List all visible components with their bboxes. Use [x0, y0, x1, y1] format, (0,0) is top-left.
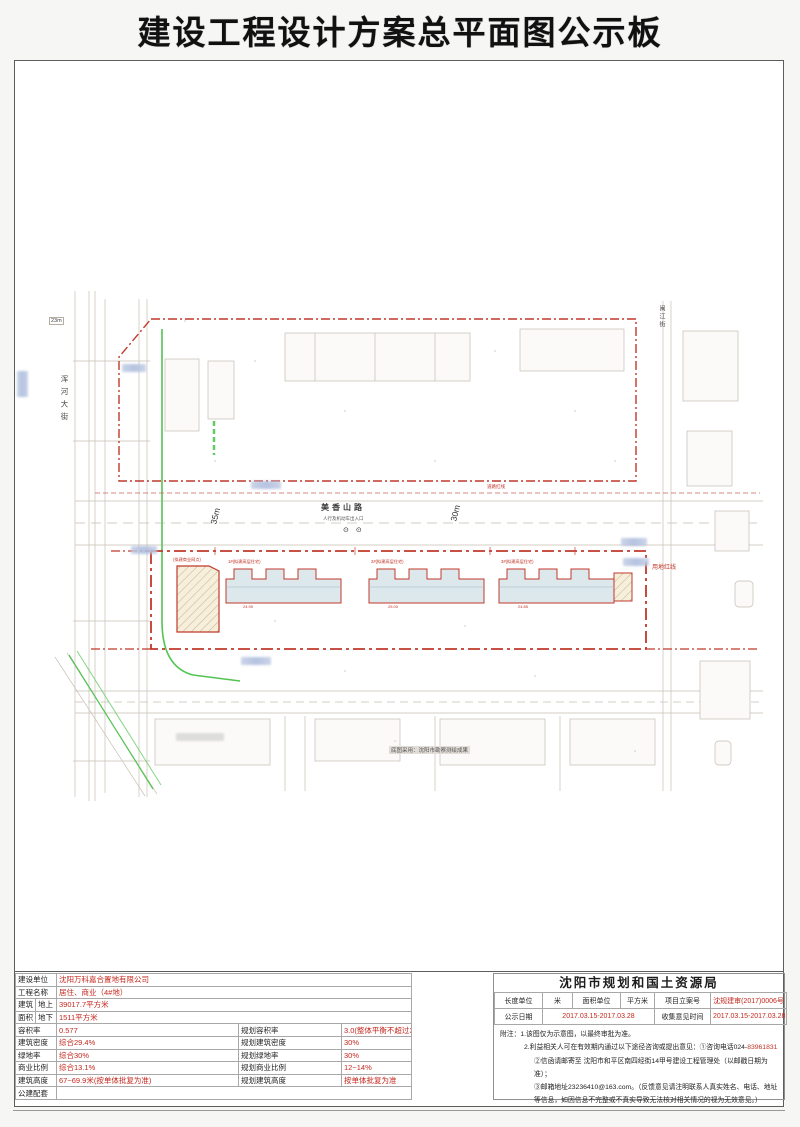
blurred-label: [122, 364, 146, 372]
note-line: ②信函请邮寄至 沈阳市和平区南四经街14甲号建设工程管理处（以邮戳日期为准）；: [500, 1055, 780, 1082]
row-value: 39017.7平方米: [57, 999, 412, 1012]
note-line: ③邮箱地址23236410@163.com。（反馈意见请注明联系人真实姓名、电话…: [500, 1081, 780, 1108]
row-label2: 规划建筑密度: [239, 1036, 342, 1049]
unit-label: 面积单位: [573, 993, 621, 1009]
elevation-mark: 24.95: [243, 604, 253, 609]
table-row: 工程名称居住、商业（4#地）: [16, 986, 412, 999]
unit-value: 米: [543, 993, 573, 1009]
table-row: 商业比例综合13.1%规划商业比例12~14%: [16, 1062, 412, 1075]
row-value2: 按单体批复为准: [342, 1074, 412, 1087]
table-row: 建设单位沈阳万科嘉合置地有限公司: [16, 974, 412, 987]
row-value: 1511平方米: [57, 1011, 412, 1024]
row-value: 综合13.1%: [57, 1062, 239, 1075]
title-block: 建设单位沈阳万科嘉合置地有限公司 工程名称居住、商业（4#地） 建筑地上3901…: [15, 972, 783, 1103]
row-label: 容积率: [16, 1024, 57, 1037]
drawing-sheet: 浑河大街 23m 美香山路 35m 30m 人行及机动车出入口 ⊙⊙ 用地红线 …: [14, 60, 784, 1107]
road-width-label: 23m: [49, 317, 64, 325]
row-value: 综合30%: [57, 1049, 239, 1062]
site-redline-label: 用地红线: [652, 562, 676, 571]
context-dots: [184, 320, 636, 752]
building-label-retail: (拟建商业网点): [173, 557, 201, 563]
row-label: 建设单位: [16, 974, 57, 987]
site-plan-linework: [15, 61, 783, 972]
proposed-buildings: [177, 566, 632, 632]
page-title: 建设工程设计方案总平面图公示板: [0, 6, 800, 54]
row-value2: 30%: [342, 1036, 412, 1049]
row-value2: 12~14%: [342, 1062, 412, 1075]
blurred-label: [17, 371, 28, 397]
blurred-label: [241, 657, 271, 665]
table-row: 公示日期 2017.03.15-2017.03.28 收集意见时间 2017.0…: [495, 1009, 787, 1025]
unit-value: 平方米: [621, 993, 655, 1009]
building-label-2: 2#(拟建高层住宅): [371, 559, 404, 565]
authority-name: 沈阳市规划和国土资源局: [494, 974, 784, 992]
row-sublabel: 地上: [36, 999, 57, 1012]
blurred-label: [621, 538, 647, 546]
row-label: 公建配套: [16, 1087, 57, 1100]
row-value2: 30%: [342, 1049, 412, 1062]
feedback-date-label: 收集意见时间: [655, 1009, 711, 1025]
row-sublabel: 地下: [36, 1011, 57, 1024]
row-label: 商业比例: [16, 1062, 57, 1075]
road-label-east: 闽江街: [657, 305, 666, 329]
row-value: [57, 1087, 412, 1100]
note-line: 附注：1.该图仅为示意图，以最终审批为准。: [500, 1028, 780, 1041]
site-plan-map: 浑河大街 23m 美香山路 35m 30m 人行及机动车出入口 ⊙⊙ 用地红线 …: [15, 61, 783, 972]
entrance-symbol-icon: ⊙⊙: [343, 526, 369, 534]
row-label: 建筑: [16, 999, 36, 1012]
table-row: 面积地下1511平方米: [16, 1011, 412, 1024]
table-row: 绿地率综合30%规划绿地率30%: [16, 1049, 412, 1062]
project-data-table: 建设单位沈阳万科嘉合置地有限公司 工程名称居住、商业（4#地） 建筑地上3901…: [15, 973, 412, 1100]
publicity-date-label: 公示日期: [495, 1009, 543, 1025]
table-row: 长度单位 米 面积单位 平方米 项目立案号 沈规建审(2017)0006号: [495, 993, 787, 1009]
row-value: 67~69.9米(按单体批复为准): [57, 1074, 239, 1087]
blurred-label: [623, 558, 649, 566]
building-label-1: 1#(拟建高层住宅): [228, 559, 261, 565]
row-label: 面积: [16, 1011, 36, 1024]
note-line: 2.利益相关人可在有效期内通过以下途径咨询或提出意见：①咨询电话024-8396…: [500, 1041, 780, 1054]
row-value2: 3.0(整体平衡不超过3.0): [342, 1024, 412, 1037]
row-label: 建筑密度: [16, 1036, 57, 1049]
elevation-mark: 24.85: [518, 604, 528, 609]
publicity-date-value: 2017.03.15-2017.03.28: [543, 1009, 655, 1025]
road-label-west: 浑河大街: [59, 375, 70, 425]
row-value: 综合29.4%: [57, 1036, 239, 1049]
road-redline-label: 道路红线: [487, 484, 505, 490]
row-label2: 规划绿地率: [239, 1049, 342, 1062]
road-label-main: 美香山路: [321, 502, 365, 513]
note-phone: 83961831: [747, 1044, 777, 1051]
blurred-label: [176, 733, 224, 741]
row-label: 工程名称: [16, 986, 57, 999]
building-label-3: 3#(拟建高层住宅): [501, 559, 534, 565]
row-label2: 规划建筑高度: [239, 1074, 342, 1087]
table-row: 建筑地上39017.7平方米: [16, 999, 412, 1012]
feedback-date-value: 2017.03.15-2017.03.28: [711, 1009, 787, 1025]
table-row: 公建配套: [16, 1087, 412, 1100]
table-row: 建筑高度67~69.9米(按单体批复为准)规划建筑高度按单体批复为准: [16, 1074, 412, 1087]
row-label2: 规划商业比例: [239, 1062, 342, 1075]
notice-board: { "title": "建设工程设计方案总平面图公示板", "colors": …: [0, 0, 800, 1127]
elevation-mark: 25.00: [388, 604, 398, 609]
blurred-label: [251, 481, 281, 489]
row-label: 绿地率: [16, 1049, 57, 1062]
entrance-label: 人行及机动车出入口: [323, 516, 367, 522]
row-value: 沈阳万科嘉合置地有限公司: [57, 974, 412, 987]
survey-source-note: 底图采用：沈阳市勘察测绘成果: [389, 746, 470, 754]
row-label: 建筑高度: [16, 1074, 57, 1087]
case-number-value: 沈规建审(2017)0006号: [711, 993, 787, 1009]
case-number-label: 项目立案号: [655, 993, 711, 1009]
table-row: 容积率0.577规划容积率3.0(整体平衡不超过3.0): [16, 1024, 412, 1037]
table-row: 建筑密度综合29.4%规划建筑密度30%: [16, 1036, 412, 1049]
unit-label: 长度单位: [495, 993, 543, 1009]
blurred-label: [131, 546, 157, 554]
row-value: 0.577: [57, 1024, 239, 1037]
notes-block: 附注：1.该图仅为示意图，以最终审批为准。 2.利益相关人可在有效期内通过以下途…: [494, 1025, 784, 1108]
authority-table: 沈阳市规划和国土资源局 长度单位 米 面积单位 平方米 项目立案号 沈规建审(2…: [493, 973, 785, 1100]
row-value: 居住、商业（4#地）: [57, 986, 412, 999]
note-text: 2.利益相关人可在有效期内通过以下途径咨询或提出意见：①咨询电话024-: [524, 1044, 747, 1051]
row-label2: 规划容积率: [239, 1024, 342, 1037]
